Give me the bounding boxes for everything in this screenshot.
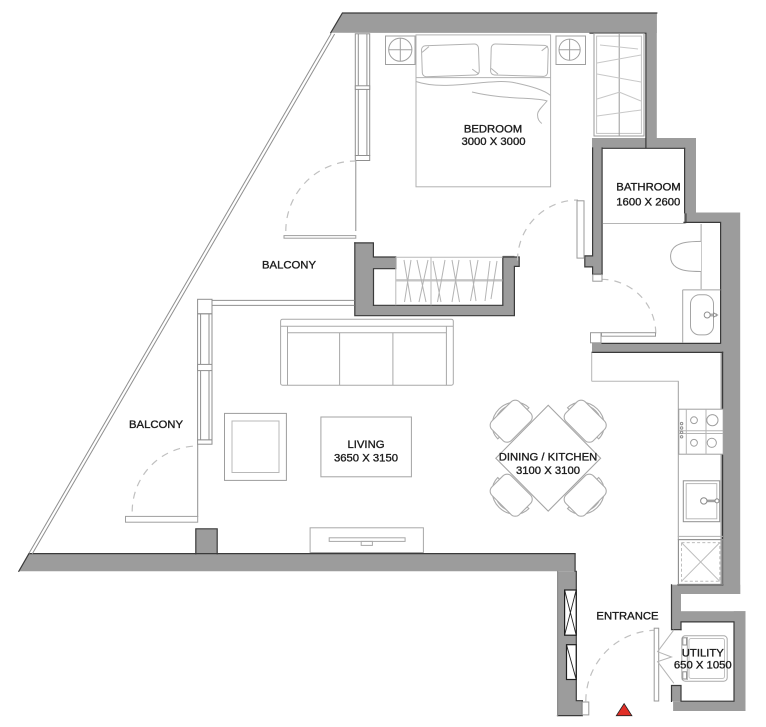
- svg-text:BALCONY: BALCONY: [262, 260, 316, 272]
- svg-text:3650 X 3150: 3650 X 3150: [334, 452, 398, 464]
- svg-text:650 X 1050: 650 X 1050: [674, 660, 732, 672]
- svg-text:BATHROOM: BATHROOM: [616, 182, 680, 194]
- svg-text:BEDROOM: BEDROOM: [464, 123, 522, 135]
- svg-text:UTILITY: UTILITY: [682, 647, 725, 659]
- svg-text:3000 X 3000: 3000 X 3000: [461, 136, 525, 148]
- svg-text:1600 X 2600: 1600 X 2600: [616, 197, 680, 209]
- svg-text:LIVING: LIVING: [347, 439, 384, 451]
- svg-text:ENTRANCE: ENTRANCE: [596, 610, 659, 622]
- svg-text:BALCONY: BALCONY: [129, 419, 183, 431]
- svg-text:3100 X 3100: 3100 X 3100: [516, 465, 580, 477]
- svg-text:DINING / KITCHEN: DINING / KITCHEN: [499, 451, 598, 463]
